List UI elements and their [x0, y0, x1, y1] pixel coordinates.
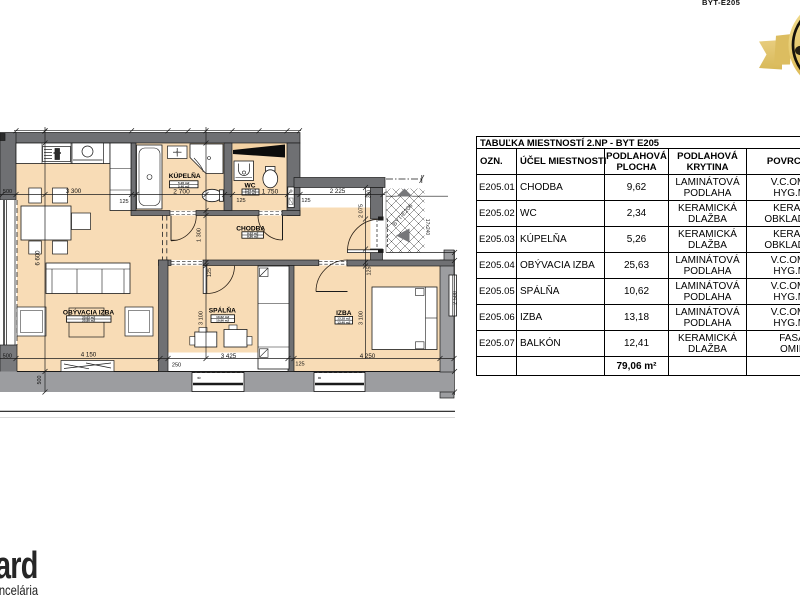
- svg-text:1 750: 1 750: [262, 188, 279, 195]
- svg-text:2,40 m2: 2,40 m2: [245, 192, 257, 196]
- svg-text:2 700: 2 700: [173, 188, 190, 195]
- svg-text:KÚPELŇA: KÚPELŇA: [169, 171, 201, 180]
- svg-text:500: 500: [3, 354, 12, 360]
- svg-text:SPÁLŇA: SPÁLŇA: [209, 305, 236, 314]
- svg-text:300: 300: [366, 190, 372, 199]
- svg-text:2 500: 2 500: [453, 291, 459, 305]
- svg-text:17x240: 17x240: [424, 219, 430, 236]
- svg-text:6 600: 6 600: [36, 250, 42, 266]
- svg-text:125: 125: [295, 362, 304, 368]
- svg-text:125: 125: [119, 199, 128, 205]
- svg-text:2 225: 2 225: [330, 188, 346, 195]
- svg-text:13,40 m2: 13,40 m2: [337, 320, 350, 324]
- svg-text:125: 125: [236, 198, 245, 204]
- svg-text:BYT-E206: BYT-E206: [392, 203, 415, 228]
- svg-text:3 425: 3 425: [221, 353, 237, 360]
- svg-text:125: 125: [207, 268, 213, 277]
- svg-text:9,80 m2: 9,80 m2: [247, 235, 259, 239]
- svg-text:500: 500: [37, 376, 43, 385]
- svg-text:500: 500: [3, 189, 12, 195]
- svg-text:3 100: 3 100: [359, 311, 365, 325]
- svg-text:4 250: 4 250: [360, 353, 376, 360]
- svg-text:125: 125: [301, 198, 310, 204]
- svg-text:1 300: 1 300: [196, 228, 202, 242]
- svg-text:3 300: 3 300: [66, 188, 82, 195]
- svg-text:250: 250: [172, 363, 181, 369]
- svg-text:4 150: 4 150: [81, 352, 97, 359]
- svg-text:2 075: 2 075: [359, 204, 365, 218]
- svg-text:10,96 m2: 10,96 m2: [216, 319, 229, 323]
- svg-text:125: 125: [366, 267, 372, 276]
- svg-text:3 100: 3 100: [199, 311, 205, 325]
- svg-text:25,80 m2: 25,80 m2: [82, 319, 95, 323]
